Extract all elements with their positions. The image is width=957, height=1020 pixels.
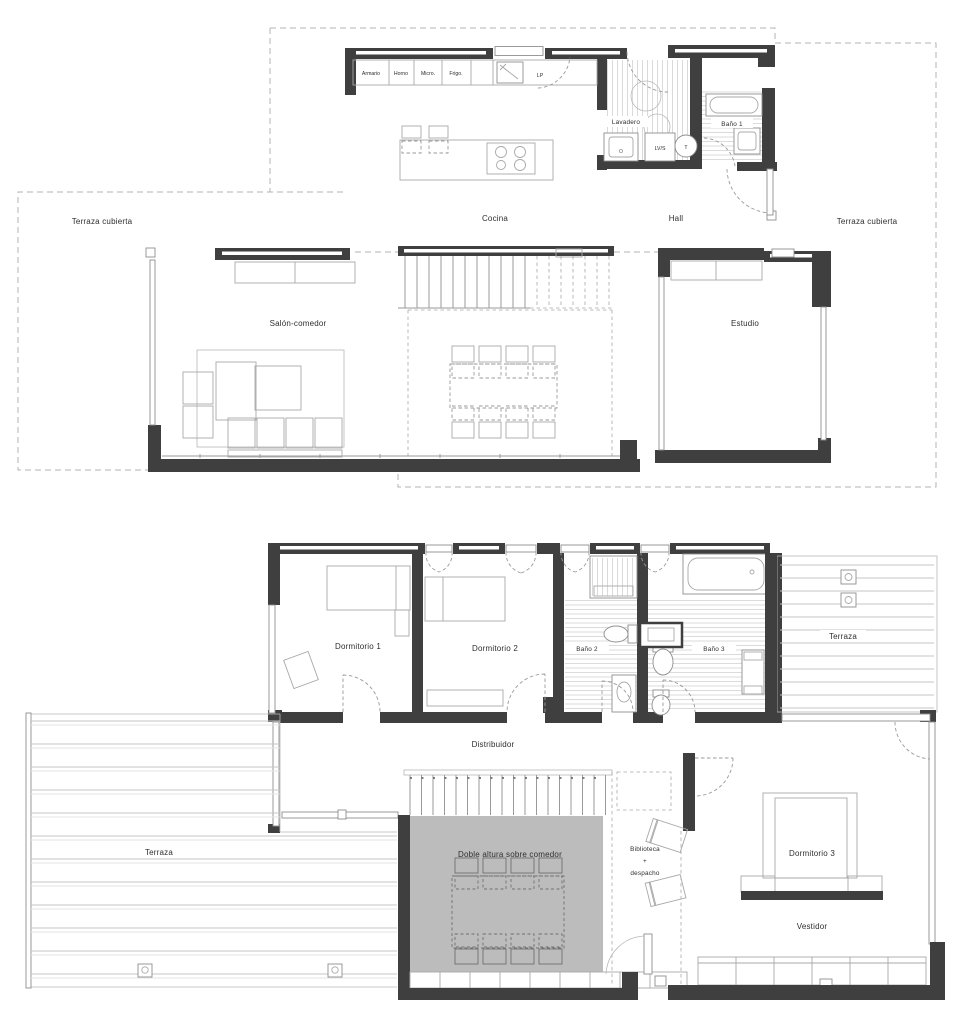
- corridor: Distribuidor: [282, 740, 515, 819]
- label-cocina: Cocina: [482, 214, 508, 223]
- bedroom-3: Dormitorio 3 Vestidor: [695, 722, 930, 988]
- label-lavadero: Lavadero: [612, 119, 640, 126]
- laundry-room: Lavadero LV/S T: [604, 60, 697, 161]
- first-floor-plan: Baño 2 Baño 3: [26, 543, 945, 1000]
- label-micro: Micro.: [421, 71, 435, 77]
- living-room-walls: [146, 248, 640, 472]
- bathroom-2: Baño 2: [565, 556, 637, 712]
- bathroom-3: Baño 3: [640, 554, 770, 715]
- kitchen-island: [400, 126, 553, 180]
- floor-plan-drawing: Armario Horno Micro. Frigo. LP: [0, 0, 957, 1020]
- label-terraza-cubierta-der: Terraza cubierta: [837, 217, 898, 226]
- label-biblioteca-2: +: [643, 858, 647, 865]
- staircase: [398, 246, 614, 308]
- label-salon-comedor: Salón-comedor: [270, 319, 327, 328]
- label-terraza-cubierta-izq: Terraza cubierta: [72, 217, 133, 226]
- studio-room: [655, 248, 831, 463]
- label-vestidor: Vestidor: [797, 922, 828, 931]
- label-lp: LP: [537, 73, 544, 79]
- label-distribuidor: Distribuidor: [472, 740, 515, 749]
- bathroom-1: Baño 1: [702, 88, 762, 166]
- label-estudio: Estudio: [731, 319, 759, 328]
- label-frigo: Frigo.: [449, 71, 462, 77]
- label-horno: Horno: [394, 71, 408, 77]
- label-biblioteca-1: Biblioteca: [630, 846, 660, 853]
- label-terraza-der: Terraza: [829, 632, 857, 641]
- label-bano3: Baño 3: [703, 646, 725, 653]
- label-biblioteca-3: despacho: [630, 870, 660, 877]
- kitchen-counter: Armario Horno Micro. Frigo. LP: [353, 57, 597, 88]
- label-terraza-izq: Terraza: [145, 848, 173, 857]
- label-armario: Armario: [362, 71, 380, 77]
- terrace-left: Terraza: [26, 713, 397, 988]
- floor-plan-page: Armario Horno Micro. Frigo. LP: [0, 0, 957, 1020]
- label-dormitorio2: Dormitorio 2: [472, 644, 518, 653]
- label-hall: Hall: [669, 214, 684, 223]
- label-bano1: Baño 1: [721, 121, 743, 128]
- sofa-group: [183, 350, 344, 457]
- label-lvs: LV/S: [655, 146, 666, 152]
- terrace-right: Terraza: [765, 553, 937, 944]
- label-bano2: Baño 2: [576, 646, 598, 653]
- library-office: Biblioteca + despacho: [612, 753, 695, 985]
- dining-table: [450, 346, 557, 438]
- label-dormitorio1: Dormitorio 1: [335, 642, 381, 651]
- ground-floor-plan: Armario Horno Micro. Frigo. LP: [18, 28, 936, 487]
- bedroom-1: [284, 566, 410, 712]
- label-dormitorio3: Dormitorio 3: [789, 849, 835, 858]
